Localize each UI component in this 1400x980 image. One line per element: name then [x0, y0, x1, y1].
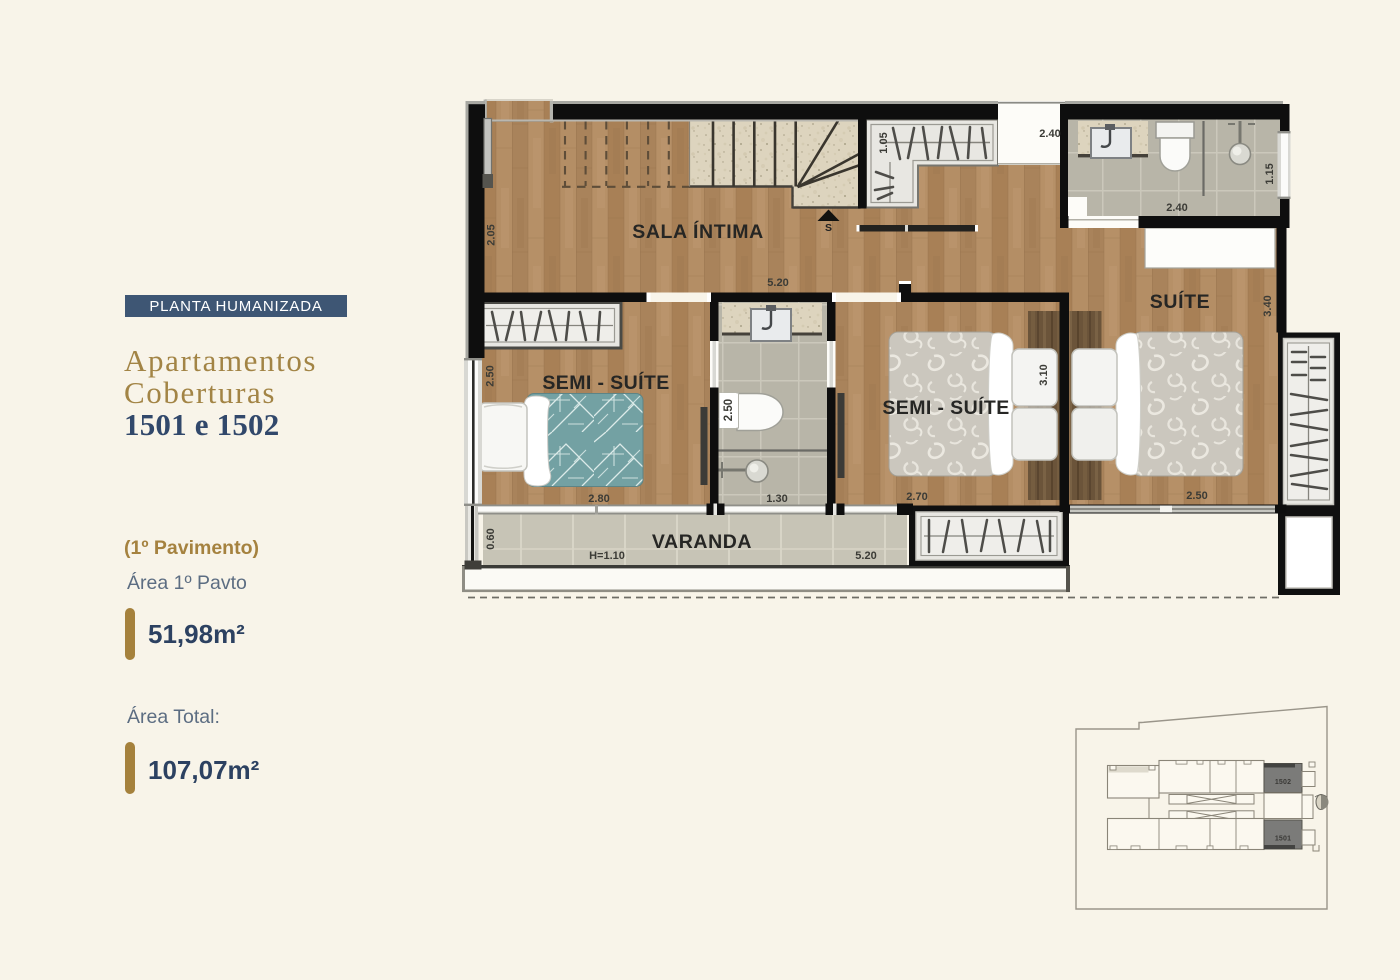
svg-text:2.50: 2.50 — [1186, 490, 1207, 502]
svg-text:2.40: 2.40 — [1039, 128, 1060, 140]
svg-text:3.40: 3.40 — [1262, 295, 1274, 316]
svg-text:1.05: 1.05 — [878, 132, 890, 153]
svg-text:2.50: 2.50 — [485, 365, 497, 386]
svg-text:2.40: 2.40 — [1166, 202, 1187, 214]
svg-text:SEMI - SUÍTE: SEMI - SUÍTE — [882, 396, 1009, 419]
svg-text:1502: 1502 — [1275, 779, 1291, 786]
svg-text:1501: 1501 — [1275, 836, 1291, 843]
svg-text:1.30: 1.30 — [766, 493, 787, 505]
svg-text:S: S — [825, 222, 832, 234]
svg-text:SUÍTE: SUÍTE — [1150, 290, 1210, 313]
svg-text:VARANDA: VARANDA — [652, 531, 752, 553]
svg-text:0.60: 0.60 — [485, 528, 497, 549]
svg-text:H=1.10: H=1.10 — [589, 550, 625, 562]
svg-text:2.80: 2.80 — [588, 493, 609, 505]
svg-text:2.70: 2.70 — [906, 491, 927, 503]
svg-text:5.20: 5.20 — [855, 550, 876, 562]
svg-text:2.50: 2.50 — [723, 399, 735, 421]
svg-text:5.20: 5.20 — [767, 277, 788, 289]
svg-text:2.05: 2.05 — [486, 224, 498, 245]
svg-text:1.15: 1.15 — [1264, 163, 1276, 184]
svg-text:SALA ÍNTIMA: SALA ÍNTIMA — [632, 220, 764, 243]
svg-text:3.10: 3.10 — [1038, 364, 1050, 385]
svg-text:SEMI - SUÍTE: SEMI - SUÍTE — [542, 371, 669, 394]
